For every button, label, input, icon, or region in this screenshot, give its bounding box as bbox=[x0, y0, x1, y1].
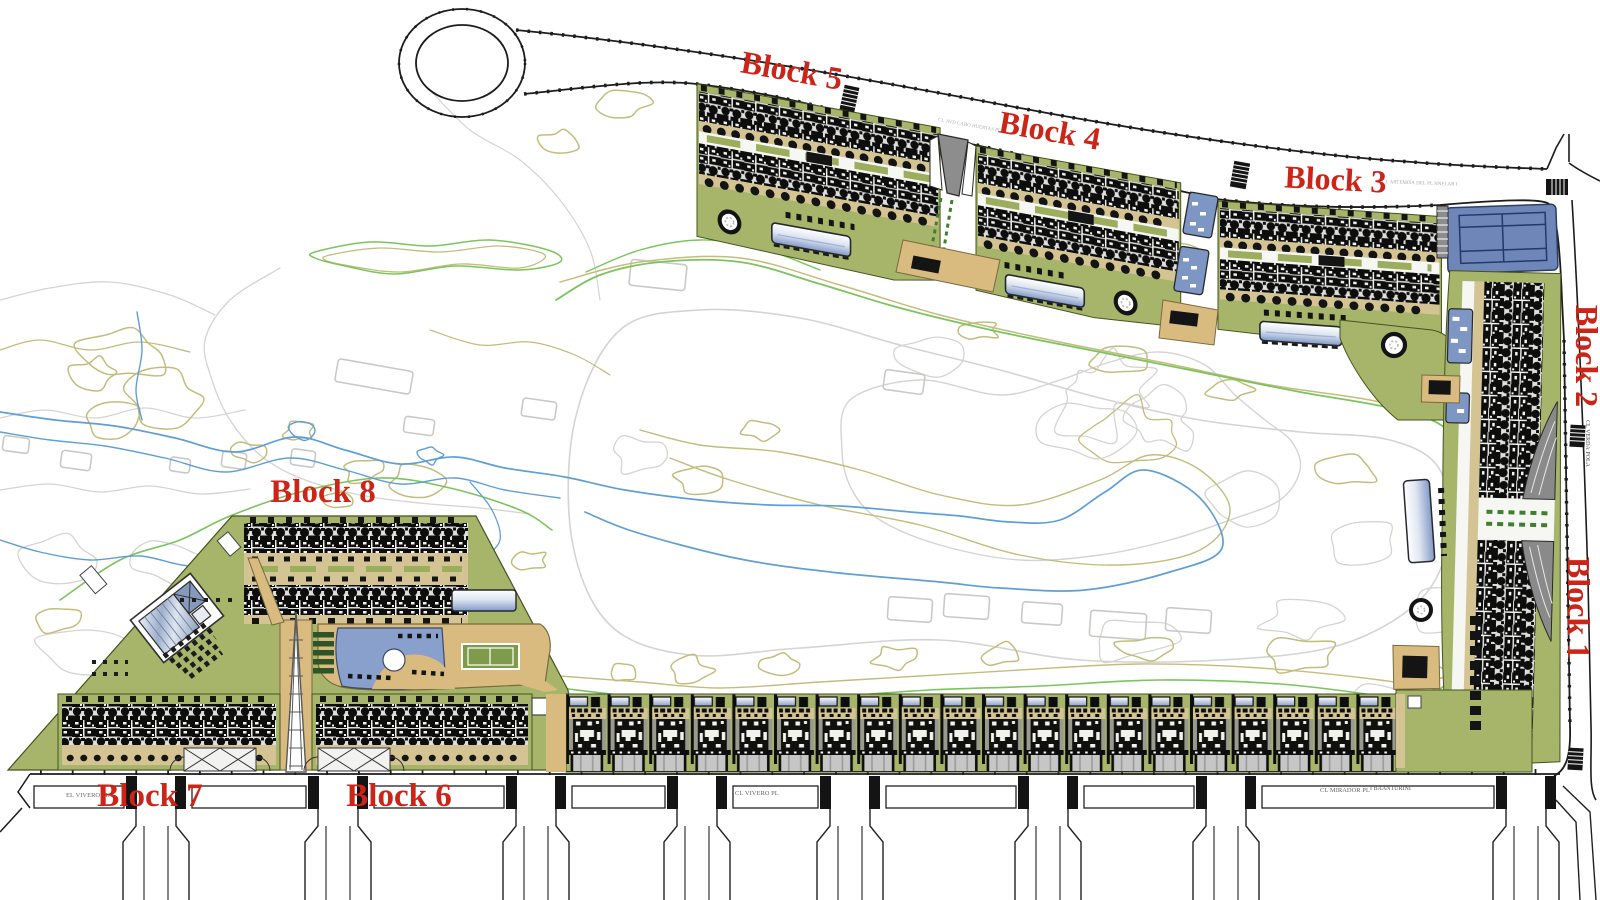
svg-text:CL VIVERO PL: CL VIVERO PL bbox=[735, 790, 779, 797]
svg-text:Block 8: Block 8 bbox=[270, 474, 375, 510]
svg-text:I BAANTURINI: I BAANTURINI bbox=[1370, 786, 1411, 792]
svg-text:Block 1: Block 1 bbox=[1561, 557, 1597, 659]
svg-text:Block 7: Block 7 bbox=[97, 778, 202, 814]
svg-text:Block 2: Block 2 bbox=[1569, 305, 1600, 407]
svg-text:Block 6: Block 6 bbox=[346, 778, 451, 814]
svg-text:Block 3: Block 3 bbox=[1284, 158, 1388, 199]
svg-text:CL MIRADOR PL: CL MIRADOR PL bbox=[1320, 787, 1370, 794]
